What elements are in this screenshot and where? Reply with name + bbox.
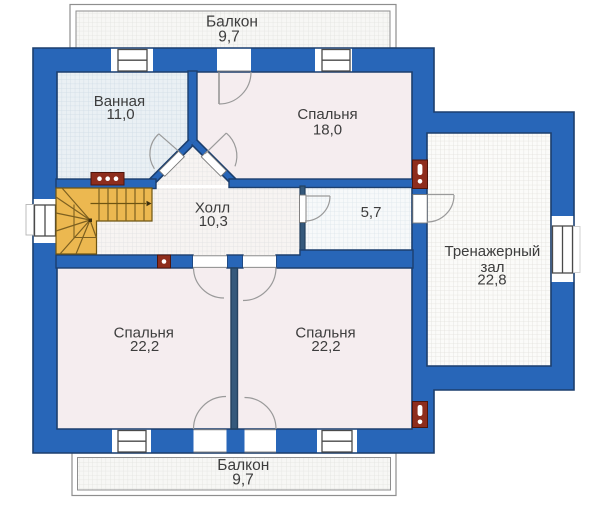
svg-text:10,3: 10,3 (199, 213, 228, 230)
svg-text:Тренажерный: Тренажерный (445, 243, 541, 260)
svg-text:18,0: 18,0 (313, 122, 342, 139)
svg-text:22,2: 22,2 (311, 338, 340, 355)
svg-text:5,7: 5,7 (361, 204, 382, 221)
svg-text:22,2: 22,2 (130, 338, 159, 355)
svg-text:22,8: 22,8 (477, 272, 506, 289)
svg-text:Спальня: Спальня (297, 106, 357, 123)
svg-text:11,0: 11,0 (107, 106, 135, 123)
svg-text:9,7: 9,7 (232, 472, 254, 489)
svg-text:9,7: 9,7 (218, 29, 240, 46)
